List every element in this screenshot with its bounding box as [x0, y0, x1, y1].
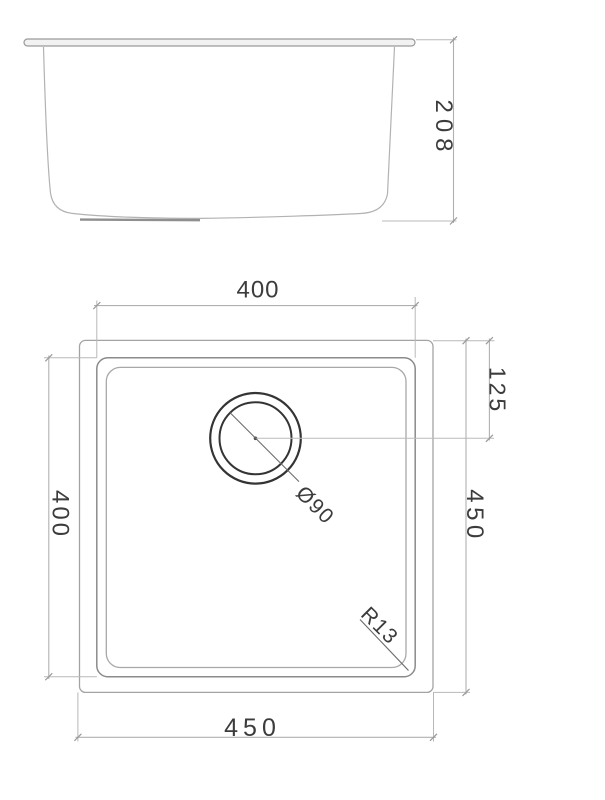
- svg-text:400: 400: [236, 277, 279, 304]
- svg-text:450: 450: [461, 489, 488, 543]
- svg-text:Ø90: Ø90: [291, 482, 339, 530]
- svg-text:125: 125: [485, 367, 511, 414]
- svg-text:R13: R13: [356, 603, 403, 650]
- svg-text:400: 400: [47, 490, 74, 539]
- svg-text:450: 450: [224, 714, 281, 742]
- svg-text:208: 208: [430, 99, 457, 157]
